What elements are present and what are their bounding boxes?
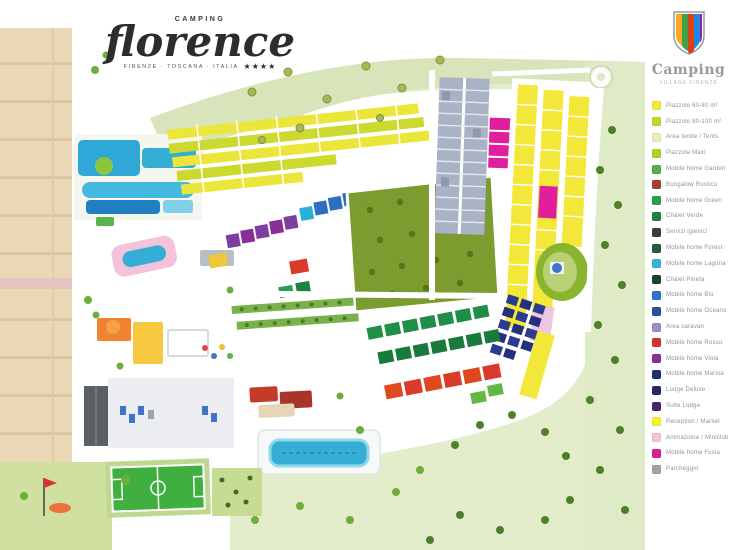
site-map-area: CAMPING florence firenze · toscana · ita… (0, 0, 645, 550)
legend-item: Area tende / Tents (652, 130, 732, 146)
legend-item: Piazzole Maxi (652, 145, 732, 161)
legend-item: Reception / Market (652, 414, 732, 430)
caravan-parking-strip (434, 77, 489, 235)
legend-label: Mobile home Blu (666, 292, 714, 298)
legend-item: Chalet Pineta (652, 272, 732, 288)
legend-sidebar: Camping Village Firenze Piazzole 60-80 m… (645, 0, 732, 550)
legend-label: Mobile home Green (666, 198, 722, 204)
brand-subtitle: Village Firenze (645, 80, 732, 86)
legend-swatch (652, 180, 661, 189)
legend-item: Piazzole 60-80 m² (652, 98, 732, 114)
legend-label: Mobile home Laguna (666, 261, 726, 267)
legend-swatch (652, 101, 661, 110)
legend-item: Mobile home Garden (652, 161, 732, 177)
legend-label: Mobile home Oceano (666, 308, 727, 314)
legend-label: Servizi igienici (666, 229, 707, 235)
legend-swatch (652, 228, 661, 237)
legend-item: Mobile home Oceano (652, 303, 732, 319)
sports-field (105, 458, 211, 518)
legend-label: Mobile home Fuxia (666, 450, 720, 456)
legend-swatch (652, 417, 661, 426)
legend-label: Lodge Deluxe (666, 387, 705, 393)
legend-label: Suite Lodge (666, 403, 700, 409)
legend-item: Mobile home Fuxia (652, 446, 732, 462)
legend-swatch (652, 244, 661, 253)
site-map (0, 0, 645, 550)
legend-list: Piazzole 60-80 m²Piazzole 80-100 m²Area … (645, 98, 732, 477)
legend-item: Suite Lodge (652, 398, 732, 414)
legend-swatch (652, 338, 661, 347)
legend-swatch (652, 275, 661, 284)
legend-label: Mobile home Marina (666, 371, 724, 377)
legend-item: Animazione / Miniclub (652, 430, 732, 446)
mobile-homes-magenta-b (538, 186, 558, 219)
legend-item: Piazzole 80-100 m² (652, 114, 732, 130)
legend-swatch (652, 291, 661, 300)
legend-item: Area caravan (652, 319, 732, 335)
legend-label: Bungalow Rustico (666, 182, 717, 188)
legend-item: Lodge Deluxe (652, 382, 732, 398)
legend-item: Mobile home Viola (652, 351, 732, 367)
legend-swatch (652, 117, 661, 126)
sidebar-brand: Camping Village Firenze (645, 62, 732, 86)
legend-swatch (652, 149, 661, 158)
legend-item: Bungalow Rustico (652, 177, 732, 193)
legend-label: Mobile home Garden (666, 166, 726, 172)
parking-lot (84, 378, 234, 448)
beach (0, 28, 72, 462)
legend-label: Reception / Market (666, 419, 720, 425)
legend-item: Servizi igienici (652, 224, 732, 240)
legend-swatch (652, 165, 661, 174)
boules-court (212, 468, 262, 516)
pond (536, 243, 588, 301)
legend-swatch (652, 465, 661, 474)
legend-swatch (652, 212, 661, 221)
legend-swatch (652, 259, 661, 268)
legend-swatch (652, 402, 661, 411)
legend-label: Piazzole Maxi (666, 150, 706, 156)
legend-label: Mobile home Forest (666, 245, 723, 251)
legend-item: Mobile home Blu (652, 288, 732, 304)
legend-label: Piazzole 60-80 m² (666, 103, 718, 109)
legend-label: Chalet Verde (666, 213, 703, 219)
legend-swatch (652, 386, 661, 395)
legend-label: Area caravan (666, 324, 704, 330)
legend-label: Piazzole 80-100 m² (666, 119, 721, 125)
legend-label: Mobile home Rosso (666, 340, 722, 346)
legend-swatch (652, 370, 661, 379)
beach-walkway (0, 278, 72, 289)
legend-item: Mobile home Green (652, 193, 732, 209)
legend-item: Mobile home Laguna (652, 256, 732, 272)
legend-item: Chalet Verde (652, 209, 732, 225)
legend-item: Mobile home Forest (652, 240, 732, 256)
legend-swatch (652, 323, 661, 332)
campsite-map-page: CAMPING florence firenze · toscana · ita… (0, 0, 732, 550)
roundabout (590, 66, 612, 88)
boat (49, 503, 71, 513)
legend-item: Mobile home Marina (652, 367, 732, 383)
legend-item: Parcheggio (652, 461, 732, 477)
legend-label: Mobile home Viola (666, 356, 719, 362)
legend-item: Mobile home Rosso (652, 335, 732, 351)
legend-swatch (652, 354, 661, 363)
crest-logo (672, 10, 706, 56)
legend-swatch (652, 307, 661, 316)
legend-swatch (652, 449, 661, 458)
legend-swatch (652, 196, 661, 205)
swimming-pool (258, 430, 380, 474)
brand-name: Camping (645, 62, 732, 78)
legend-swatch (652, 133, 661, 142)
legend-label: Area tende / Tents (666, 134, 718, 140)
legend-label: Chalet Pineta (666, 277, 705, 283)
legend-swatch (652, 433, 661, 442)
legend-label: Parcheggio (666, 466, 698, 472)
legend-label: Animazione / Miniclub (666, 435, 729, 441)
